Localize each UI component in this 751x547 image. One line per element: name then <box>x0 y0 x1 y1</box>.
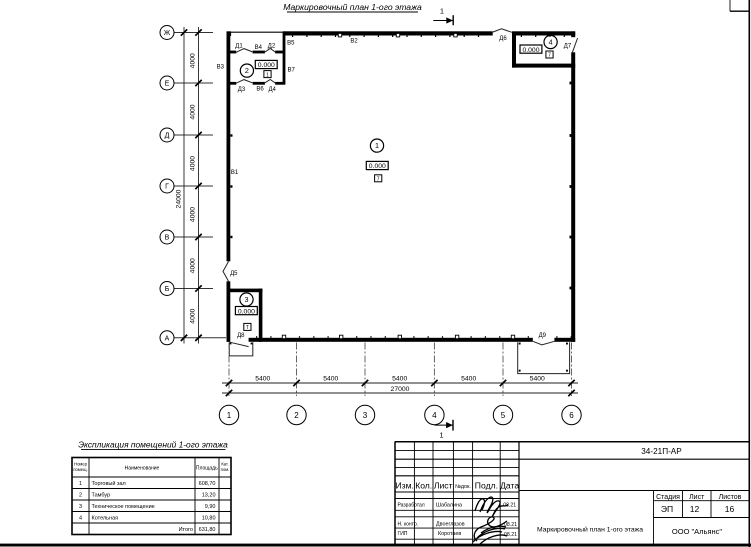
svg-text:Итого: Итого <box>179 527 193 533</box>
svg-text:4000: 4000 <box>190 156 197 171</box>
svg-text:0.000: 0.000 <box>238 308 255 315</box>
svg-text:4000: 4000 <box>190 207 197 222</box>
svg-text:Д1: Д1 <box>235 44 243 50</box>
svg-text:В5: В5 <box>287 40 295 46</box>
svg-text:Кат.: Кат. <box>221 461 228 466</box>
svg-text:Площадь: Площадь <box>196 466 218 472</box>
svg-text:4000: 4000 <box>190 258 197 273</box>
svg-text:Коротаев: Коротаев <box>438 531 461 537</box>
svg-text:Техническое помещение: Техническое помещение <box>92 504 155 510</box>
svg-text:1: 1 <box>266 72 269 78</box>
svg-text:Д6: Д6 <box>499 36 507 42</box>
svg-text:Кол.: Кол. <box>415 481 432 491</box>
svg-text:Д3: Д3 <box>238 87 246 93</box>
svg-text:Д: Д <box>165 133 170 140</box>
svg-text:Г: Г <box>165 184 169 191</box>
svg-text:1: 1 <box>79 481 82 487</box>
svg-text:6: 6 <box>569 411 574 420</box>
svg-text:Стадия: Стадия <box>656 494 680 501</box>
svg-text:Д7: Д7 <box>564 43 572 49</box>
svg-text:4000: 4000 <box>190 53 197 68</box>
svg-text:Е: Е <box>165 81 170 88</box>
svg-text:В6: В6 <box>256 86 264 92</box>
svg-text:Номер: Номер <box>74 461 88 466</box>
svg-text:4: 4 <box>432 411 437 420</box>
svg-text:5400: 5400 <box>392 376 407 383</box>
svg-text:4000: 4000 <box>190 308 197 323</box>
svg-text:4000: 4000 <box>190 104 197 119</box>
svg-text:Д4: Д4 <box>268 87 276 93</box>
svg-text:Тамбур: Тамбур <box>92 493 111 499</box>
svg-text:ЭП: ЭП <box>661 504 673 514</box>
svg-text:0.000: 0.000 <box>522 47 539 54</box>
svg-text:В4: В4 <box>255 45 263 51</box>
svg-text:3: 3 <box>79 504 82 510</box>
svg-text:27000: 27000 <box>391 386 410 393</box>
svg-text:24000: 24000 <box>176 189 183 208</box>
svg-text:4: 4 <box>549 38 553 47</box>
svg-text:В2: В2 <box>350 38 358 44</box>
svg-text:1: 1 <box>375 141 379 150</box>
svg-text:608,70: 608,70 <box>199 481 216 487</box>
svg-text:7: 7 <box>548 53 551 59</box>
svg-text:Д9: Д9 <box>539 333 547 339</box>
svg-text:1: 1 <box>227 411 232 420</box>
svg-text:0.000: 0.000 <box>369 163 386 170</box>
svg-text:Н. контр.: Н. контр. <box>398 521 419 527</box>
svg-text:Т: Т <box>246 325 249 331</box>
svg-text:Торговый зал: Торговый зал <box>92 480 126 487</box>
svg-text:Лист: Лист <box>689 494 705 501</box>
svg-text:08.21: 08.21 <box>504 532 517 538</box>
svg-text:Д5: Д5 <box>230 271 238 277</box>
svg-text:13,20: 13,20 <box>202 493 216 499</box>
svg-text:10,80: 10,80 <box>202 516 216 522</box>
svg-text:Наименование: Наименование <box>125 466 160 472</box>
svg-text:Б: Б <box>165 286 170 293</box>
svg-text:Листов: Листов <box>719 494 742 501</box>
svg-text:3: 3 <box>245 295 249 304</box>
svg-text:1: 1 <box>439 431 443 440</box>
svg-text:В7: В7 <box>288 67 296 73</box>
svg-text:2: 2 <box>245 66 249 75</box>
svg-text:08.21: 08.21 <box>504 522 517 528</box>
svg-text:7: 7 <box>377 177 380 183</box>
svg-text:В3: В3 <box>217 65 225 71</box>
svg-text:2: 2 <box>79 493 82 499</box>
svg-text:помещ.: помещ. <box>73 467 87 472</box>
svg-text:Шабалина: Шабалина <box>436 502 462 508</box>
svg-text:Котельная: Котельная <box>92 516 119 522</box>
svg-text:Двоеглазов: Двоеглазов <box>436 521 465 527</box>
svg-text:Дата: Дата <box>500 481 519 491</box>
svg-text:34-21П-АР: 34-21П-АР <box>641 447 682 456</box>
svg-text:5400: 5400 <box>530 376 545 383</box>
svg-text:5400: 5400 <box>323 376 338 383</box>
svg-text:4: 4 <box>79 516 82 522</box>
svg-text:1: 1 <box>440 7 444 16</box>
svg-text:2: 2 <box>294 411 299 420</box>
svg-text:5400: 5400 <box>461 376 476 383</box>
svg-text:Д8: Д8 <box>237 333 245 339</box>
svg-text:А: А <box>165 335 170 342</box>
svg-text:Разработал: Разработал <box>398 502 425 508</box>
svg-text:Маркировочный план 1-ого этажа: Маркировочный план 1-ого этажа <box>537 526 643 534</box>
svg-text:Подл.: Подл. <box>475 481 498 491</box>
svg-text:В: В <box>165 235 170 242</box>
svg-text:0.000: 0.000 <box>258 62 275 69</box>
svg-text:16: 16 <box>725 504 735 514</box>
svg-text:5: 5 <box>501 411 506 420</box>
svg-text:Изм.: Изм. <box>395 481 413 491</box>
svg-text:№док.: №док. <box>455 484 471 490</box>
svg-text:12: 12 <box>690 504 700 514</box>
svg-text:Экспликация помещений 1-ого эт: Экспликация помещений 1-ого этажа <box>78 440 228 450</box>
svg-text:ГИП: ГИП <box>398 531 408 537</box>
svg-text:5400: 5400 <box>255 376 270 383</box>
svg-text:Лист: Лист <box>434 481 453 491</box>
svg-text:9,90: 9,90 <box>205 504 216 510</box>
svg-text:631,80: 631,80 <box>199 527 216 533</box>
svg-text:Ж: Ж <box>164 30 171 37</box>
svg-text:В1: В1 <box>231 170 239 176</box>
svg-text:Д2: Д2 <box>268 43 276 49</box>
svg-text:ООО "Альянс": ООО "Альянс" <box>672 527 722 536</box>
svg-text:пом.: пом. <box>221 467 230 472</box>
svg-text:3: 3 <box>363 411 368 420</box>
svg-text:Маркировочный план 1-ого этажа: Маркировочный план 1-ого этажа <box>283 2 422 12</box>
